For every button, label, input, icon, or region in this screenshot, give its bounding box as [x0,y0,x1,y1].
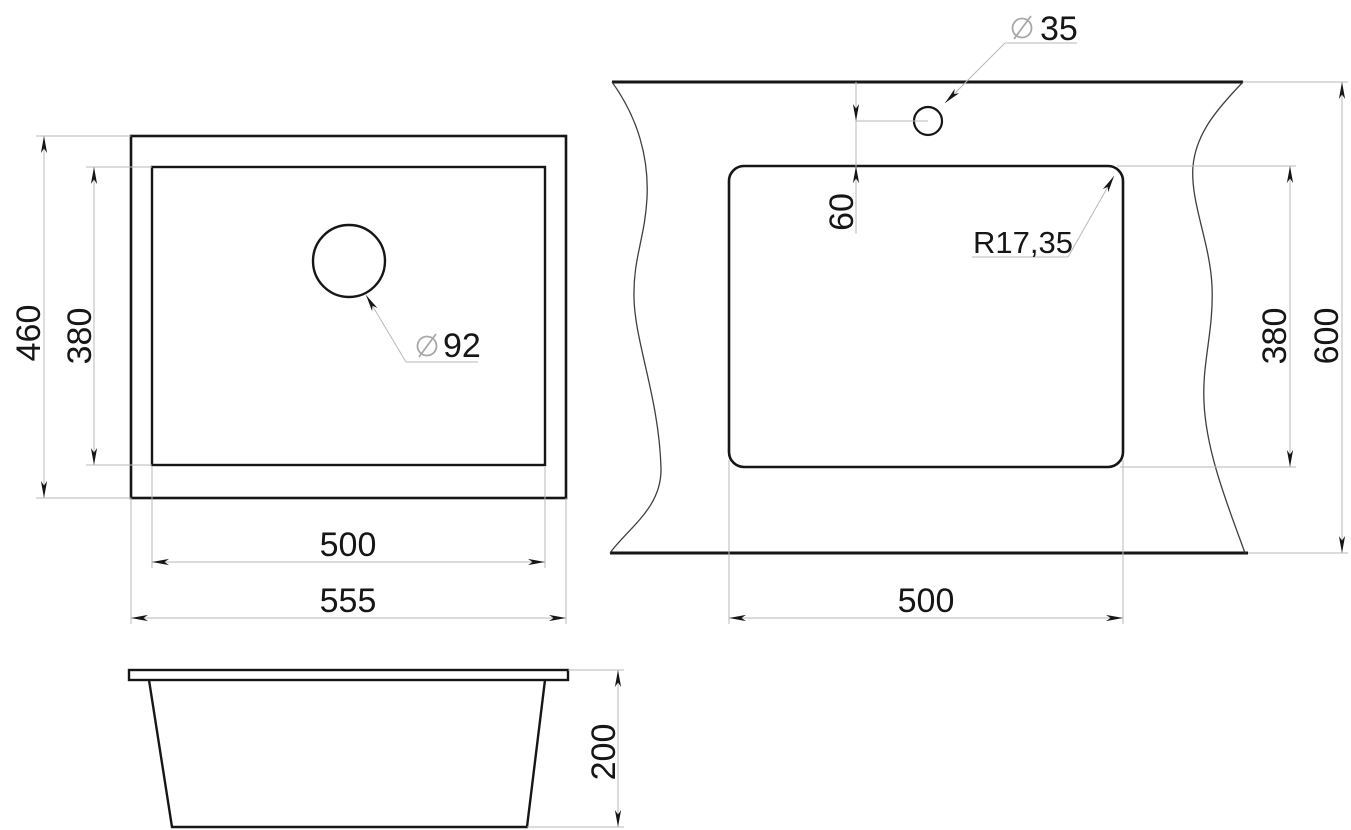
arrowhead-icon [363,293,377,311]
dim-label-cutout-height: 380 [1256,308,1294,365]
dim-label-depth: 200 [585,724,623,781]
dim-label-outer-width: 555 [320,582,377,620]
dimension-depth: 200 [527,670,624,827]
dim-label-counter-depth: 600 [1308,308,1346,365]
callout-corner-radius: R17,35 [972,174,1117,260]
dimension-bowl-width: 500 [152,467,545,568]
dim-label-corner-radius: R17,35 [973,225,1073,260]
break-line-right [1193,82,1245,553]
sink-bowl-profile [149,680,545,827]
diameter-symbol-icon [418,334,437,357]
dim-label-outer-height: 460 [10,305,48,362]
dimension-cutout-width: 500 [729,460,1123,624]
sink-top-view: 460 380 500 555 [10,136,566,624]
sink-flange-profile [129,670,568,680]
leader-line [1068,176,1114,257]
callout-drain-diameter: 92 [363,293,480,365]
dim-label-drain-diameter: 92 [443,327,481,365]
diameter-symbol-icon [1013,16,1032,39]
sink-side-view: 200 [129,670,624,827]
arrowhead-icon [1103,174,1117,192]
cutout-rect [729,166,1123,467]
sink-bowl-rect [152,167,545,465]
dimension-hole-offset: 60 [823,82,928,234]
sink-outer-rect [131,136,566,498]
dim-label-cutout-width: 500 [898,582,955,620]
callout-hole-diameter: 35 [943,10,1078,105]
technical-drawing-canvas: 460 380 500 555 [0,0,1351,830]
dim-label-bowl-height: 380 [61,308,99,365]
dimension-bowl-height: 380 [61,167,152,465]
dim-label-bowl-width: 500 [320,526,377,564]
dim-label-hole-diameter: 35 [1040,10,1078,48]
dim-label-hole-offset: 60 [823,193,861,231]
countertop-cutout-view: 60 35 R17,35 380 [610,10,1348,624]
break-line-left [610,82,661,553]
drain-hole-circle [313,225,385,297]
dimension-cutout-height: 380 [1117,166,1296,467]
leader-line [945,43,1005,103]
